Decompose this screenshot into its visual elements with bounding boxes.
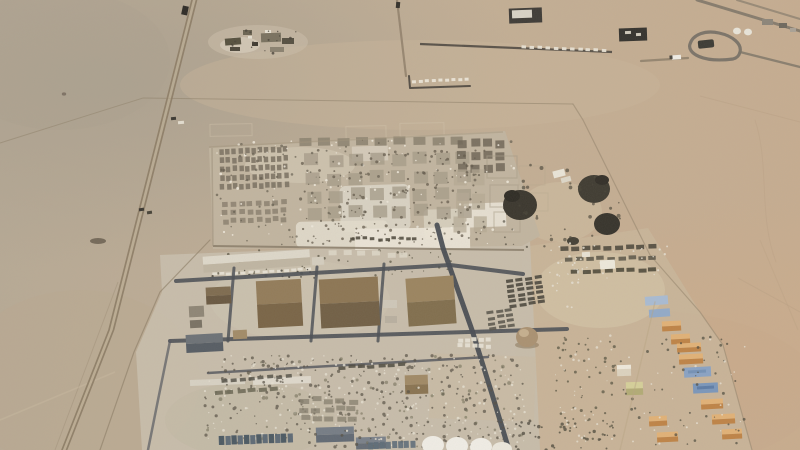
aerial-photo-canvas (0, 0, 800, 450)
aerial-photo-desert-military-base (0, 0, 800, 450)
film-grain-overlay (0, 0, 800, 450)
